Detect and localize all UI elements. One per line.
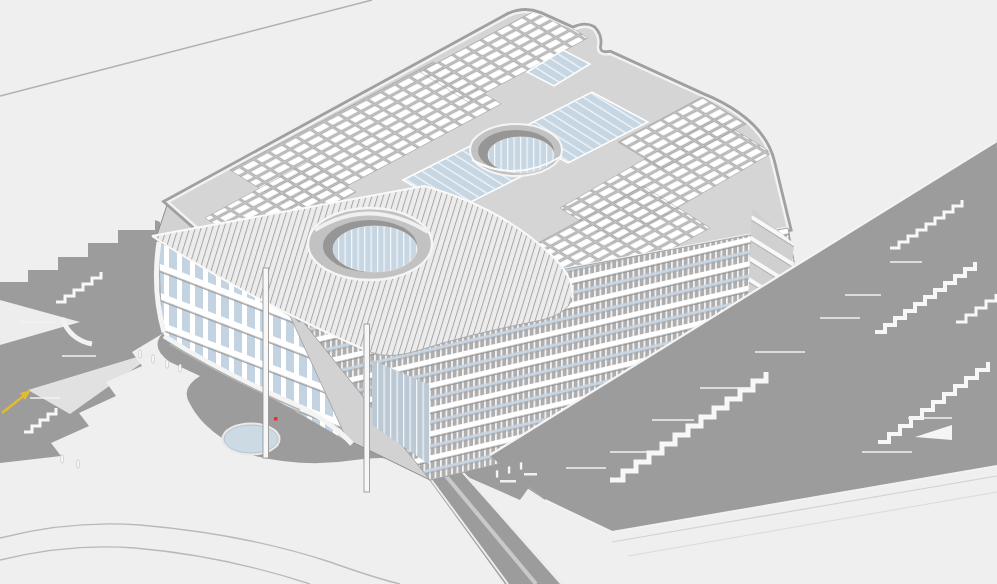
person — [139, 350, 142, 358]
canopy-column — [364, 324, 370, 492]
annotation-marker[interactable] — [274, 417, 278, 421]
person — [508, 466, 511, 474]
person — [166, 360, 169, 368]
person — [152, 355, 155, 363]
viewport[interactable] — [0, 0, 997, 584]
canopy-courtyard — [308, 208, 432, 280]
person — [179, 364, 182, 372]
person — [61, 455, 64, 463]
person — [77, 460, 80, 468]
person — [496, 470, 499, 478]
canopy-column — [263, 268, 269, 458]
pond-small — [223, 424, 279, 454]
render-canvas — [0, 0, 997, 584]
oculus-courtyard — [470, 124, 562, 176]
person — [520, 462, 523, 470]
